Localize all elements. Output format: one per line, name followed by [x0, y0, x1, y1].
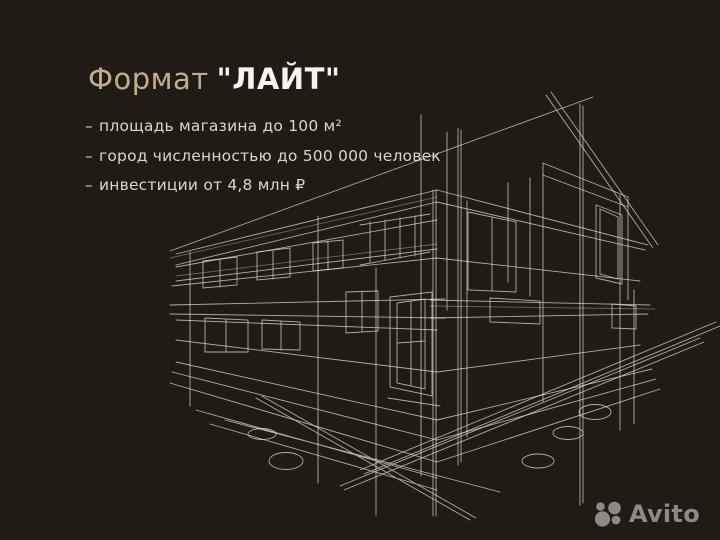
- bullet-item: – инвестиции от 4,8 млн ₽: [85, 176, 441, 206]
- bullet-marker: –: [85, 117, 99, 135]
- page-title: Формат"ЛАЙТ": [88, 62, 340, 96]
- bullet-text: город численностью до 500 000 человек: [99, 147, 441, 165]
- avito-logo-icon: [593, 499, 627, 529]
- bullet-marker: –: [85, 176, 99, 194]
- title-accent: Формат: [88, 62, 209, 96]
- bullet-list: – площадь магазина до 100 м² – город чис…: [85, 117, 441, 206]
- bullet-text: площадь магазина до 100 м²: [99, 117, 342, 135]
- slide-background: Формат"ЛАЙТ" – площадь магазина до 100 м…: [0, 0, 720, 540]
- avito-brand-text: Avito: [629, 502, 700, 526]
- bullet-text: инвестиции от 4,8 млн ₽: [99, 176, 305, 194]
- title-highlight: "ЛАЙТ": [217, 62, 341, 96]
- bullet-item: – площадь магазина до 100 м²: [85, 117, 441, 147]
- bullet-item: – город численностью до 500 000 человек: [85, 147, 441, 177]
- avito-watermark: Avito: [593, 499, 700, 529]
- bullet-marker: –: [85, 147, 99, 165]
